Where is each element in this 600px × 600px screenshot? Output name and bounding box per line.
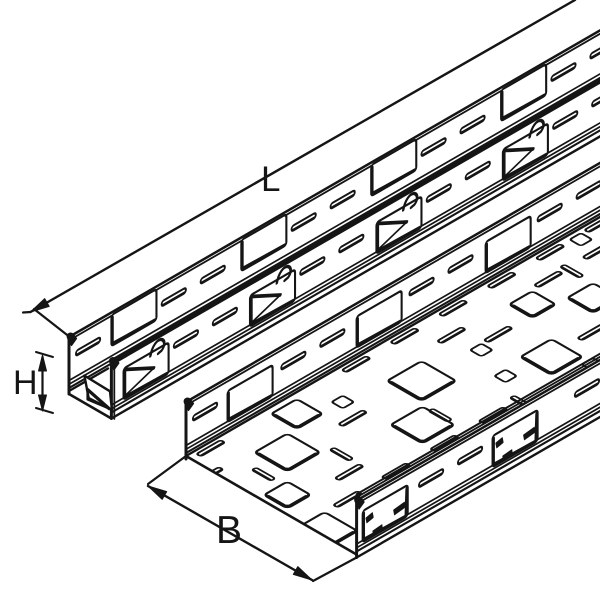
svg-text:B: B [216, 509, 242, 552]
svg-text:L: L [261, 160, 280, 199]
svg-text:H: H [13, 364, 38, 402]
